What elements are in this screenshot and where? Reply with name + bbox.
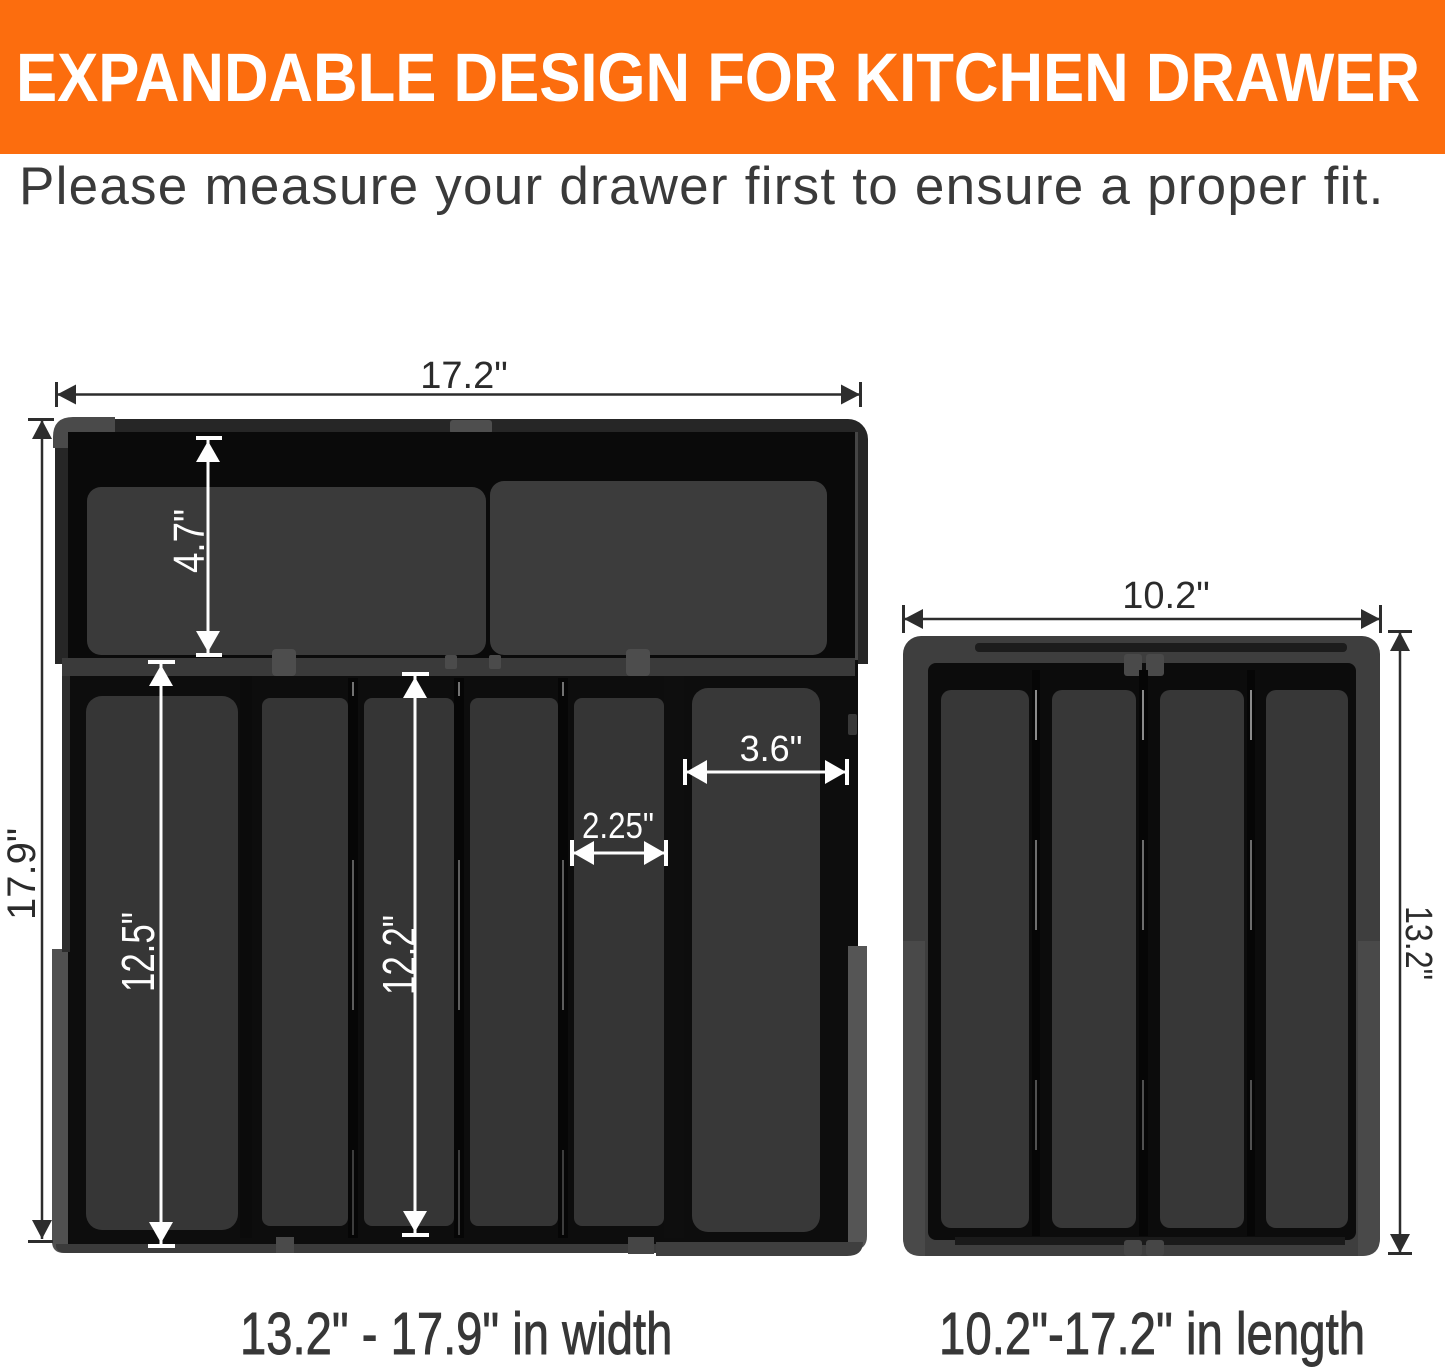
svg-text:13.2": 13.2" xyxy=(1397,906,1439,980)
svg-text:4.7": 4.7" xyxy=(165,509,214,573)
svg-text:12.2": 12.2" xyxy=(373,915,425,995)
svg-text:12.5": 12.5" xyxy=(112,912,164,992)
svg-text:17.9": 17.9" xyxy=(0,828,44,920)
svg-text:3.6": 3.6" xyxy=(740,728,803,769)
svg-text:2.25": 2.25" xyxy=(582,805,654,846)
svg-text:10.2": 10.2" xyxy=(1122,575,1209,617)
svg-text:17.2": 17.2" xyxy=(420,355,507,397)
